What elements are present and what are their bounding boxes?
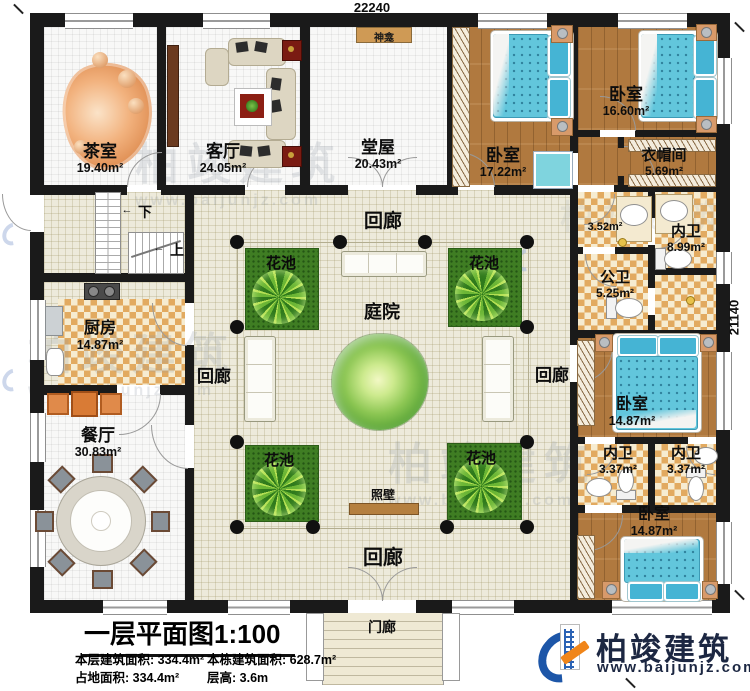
window — [716, 352, 732, 430]
bench — [341, 251, 427, 277]
column — [520, 320, 534, 334]
lounge-chair — [205, 48, 229, 86]
stair-down-label: 下 — [136, 202, 154, 222]
porch-pilaster — [306, 613, 324, 681]
shrine-label: 神龛 — [374, 33, 394, 44]
window — [716, 58, 732, 124]
stat-floor-height: 层高: 3.6m — [207, 667, 268, 686]
staircase — [95, 192, 121, 274]
room-label-ensuite-left: 内卫 3.37m² — [590, 446, 646, 476]
wall-segment — [570, 137, 578, 153]
bench-divider — [368, 253, 369, 273]
column — [520, 235, 534, 249]
nightstand — [696, 116, 717, 133]
chair — [35, 511, 54, 532]
nightstand — [595, 334, 613, 352]
nightstand — [702, 581, 718, 599]
wall-segment — [570, 437, 585, 444]
bench — [482, 336, 514, 422]
corridor-label-left: 回廊 — [188, 362, 240, 387]
bed-pillow — [628, 582, 664, 601]
bench — [244, 336, 276, 422]
bed-pillow — [694, 78, 716, 118]
stat-footprint: 占地面积: 334.4m² — [75, 667, 179, 686]
room-label-bedroom-top-left: 卧室 17.22m² — [462, 146, 544, 179]
dimension-tick — [625, 678, 636, 689]
window — [618, 13, 687, 29]
porch-pilaster — [442, 613, 460, 681]
window — [716, 252, 732, 284]
window — [612, 600, 712, 615]
window — [203, 13, 270, 29]
bench-divider — [484, 364, 510, 365]
toilet-icon — [688, 476, 704, 501]
shrine: 神龛 — [356, 27, 412, 43]
floor-plan: 柏竣建筑 www.baijunjz.com 柏竣建筑 www.baijunjz.… — [0, 0, 750, 691]
bench-divider — [246, 392, 272, 393]
wall-segment — [615, 437, 688, 444]
stat-building-area: 本栋建筑面积: 628.7m² — [207, 649, 336, 668]
end-table-dot — [288, 152, 294, 158]
bed-pillow — [694, 36, 716, 76]
floor-drain — [618, 238, 627, 247]
room-label-wash-area: 3.52m² — [580, 221, 630, 233]
nightstand — [602, 581, 620, 599]
room-label-cloakroom: 衣帽间 5.69m² — [622, 148, 706, 178]
room-label-kitchen: 厨房 14.87m² — [58, 320, 142, 352]
bench-divider — [246, 364, 272, 365]
wall-segment — [648, 245, 655, 288]
column — [230, 520, 244, 534]
room-label-tea-room: 茶室 19.40m² — [55, 142, 145, 175]
stair-down-arrow: ← — [120, 204, 134, 216]
column — [230, 435, 244, 449]
door-opening — [30, 192, 44, 232]
wall-segment — [185, 282, 194, 303]
dimension-right: 21140 — [727, 286, 742, 350]
corridor-label-right: 回廊 — [526, 361, 578, 386]
tea-room-ball — [128, 98, 144, 114]
company-website: www.baijunjz.com — [597, 659, 750, 676]
room-label-hall: 堂屋 20.43m² — [333, 138, 423, 171]
room-label-ensuite-main: 内卫 8.99m² — [658, 224, 714, 254]
floor-drain — [686, 296, 695, 305]
wall-segment — [648, 315, 655, 330]
room-label-dining-room: 餐厅 30.83m² — [52, 426, 144, 459]
bed-pillow — [664, 582, 700, 601]
tv-cabinet — [167, 45, 179, 147]
nightstand — [551, 118, 573, 136]
stat-floor-area: 本层建筑面积: 334.4m² — [75, 649, 204, 668]
stool — [100, 393, 122, 415]
tree-icon — [332, 334, 428, 430]
window — [103, 600, 167, 615]
wall-segment — [570, 505, 585, 513]
wall-segment — [648, 444, 655, 505]
dimension-top: 22240 — [340, 0, 404, 15]
sink-icon — [660, 200, 688, 222]
bench-divider — [396, 253, 397, 273]
stair-up-label: 上 — [168, 240, 186, 260]
screen-wall-label: 照壁 — [361, 486, 405, 503]
bed-pillow — [618, 336, 658, 356]
room-label-bedroom-bottom: 卧室 14.87m² — [614, 506, 694, 538]
burner-icon — [88, 286, 99, 297]
flower-bed-label: 花池 — [251, 252, 311, 273]
bench-divider — [484, 392, 510, 393]
window — [228, 600, 290, 615]
room-label-ensuite-right: 内卫 3.37m² — [658, 446, 714, 476]
tea-room-ball — [92, 52, 108, 68]
window — [452, 600, 514, 615]
sofa-pillow — [254, 41, 268, 53]
dimension-tick — [734, 590, 745, 601]
end-table-dot — [288, 46, 294, 52]
sofa-pillow — [235, 41, 248, 53]
plant-icon — [252, 462, 306, 516]
nightstand — [551, 25, 573, 43]
wall-segment — [161, 185, 245, 195]
room-label-bedroom-top-right: 卧室 16.60m² — [585, 85, 667, 118]
dining-table-center — [91, 511, 111, 531]
bed-sheet-fold — [493, 34, 509, 116]
table-plant-icon — [246, 100, 258, 112]
window — [478, 13, 547, 29]
flower-bed-label: 花池 — [451, 447, 511, 468]
stool — [71, 391, 98, 417]
bed-pillow — [548, 78, 570, 118]
room-label-living-room: 客厅 24.05m² — [178, 142, 268, 175]
column — [230, 235, 244, 249]
corridor-label-bottom: 回廊 — [354, 541, 412, 570]
plant-icon — [252, 270, 306, 324]
wardrobe — [577, 535, 595, 599]
room-label-bedroom-mid: 卧室 14.87m² — [592, 396, 672, 428]
chair — [151, 511, 170, 532]
column — [520, 520, 534, 534]
kitchen-sink-icon — [46, 348, 64, 376]
tea-room-ball — [118, 70, 136, 88]
column — [418, 235, 432, 249]
toilet-icon — [615, 298, 643, 318]
column — [520, 435, 534, 449]
corridor-label-top: 回廊 — [355, 206, 411, 233]
column — [333, 235, 347, 249]
window — [716, 522, 732, 584]
stair-up-arrow: ← — [152, 242, 166, 254]
stool — [47, 393, 69, 415]
screen-wall — [349, 503, 419, 515]
column — [440, 520, 454, 534]
bed-sheet-fold — [624, 539, 698, 553]
wall-segment — [185, 468, 194, 600]
wall-segment — [570, 185, 578, 345]
courtyard-label: 庭院 — [350, 298, 414, 324]
watermark-logo-icon — [0, 364, 28, 395]
column — [306, 520, 320, 534]
door-opening — [348, 600, 416, 613]
wall-segment — [185, 190, 194, 273]
column — [230, 320, 244, 334]
wall-segment — [285, 185, 348, 195]
window — [30, 300, 46, 360]
wall-segment — [570, 247, 583, 254]
dimension-tick — [13, 4, 24, 15]
flower-bed-label: 花池 — [249, 449, 309, 470]
plant-icon — [455, 267, 509, 321]
wall-segment — [615, 247, 648, 254]
window — [30, 413, 46, 462]
sink-icon — [586, 478, 612, 497]
wall-segment — [570, 130, 600, 137]
wall-segment — [30, 273, 194, 282]
dimension-tick — [734, 22, 745, 33]
room-label-public-bath: 公卫 5.25m² — [586, 270, 644, 300]
bed-pillow — [658, 336, 698, 356]
chair — [92, 570, 113, 589]
nightstand — [700, 334, 717, 352]
nightstand — [696, 24, 717, 41]
flower-bed-label: 花池 — [454, 252, 514, 273]
porch-label: 门廊 — [356, 617, 408, 637]
window — [65, 13, 133, 29]
burner-icon — [104, 286, 115, 297]
